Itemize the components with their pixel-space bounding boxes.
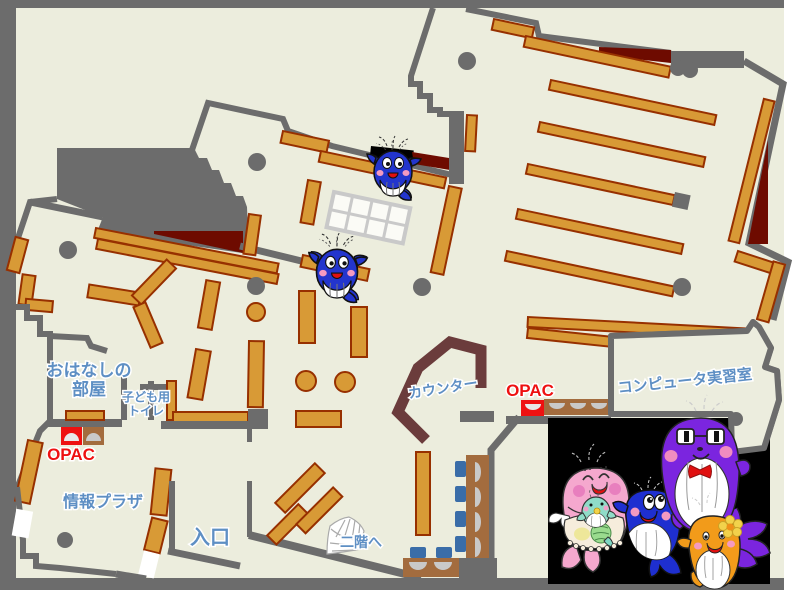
- svg-text:おはなしの: おはなしの: [47, 361, 132, 380]
- svg-text:部屋: 部屋: [72, 379, 106, 399]
- svg-text:情報プラザ: 情報プラザ: [63, 492, 143, 511]
- svg-text:子ども用: 子ども用: [122, 390, 170, 404]
- svg-text:OPAC: OPAC: [506, 381, 554, 400]
- svg-text:入口: 入口: [190, 526, 230, 549]
- svg-text:トイレ: トイレ: [128, 404, 164, 418]
- svg-text:二階へ: 二階へ: [340, 534, 382, 550]
- svg-text:OPAC: OPAC: [47, 445, 95, 464]
